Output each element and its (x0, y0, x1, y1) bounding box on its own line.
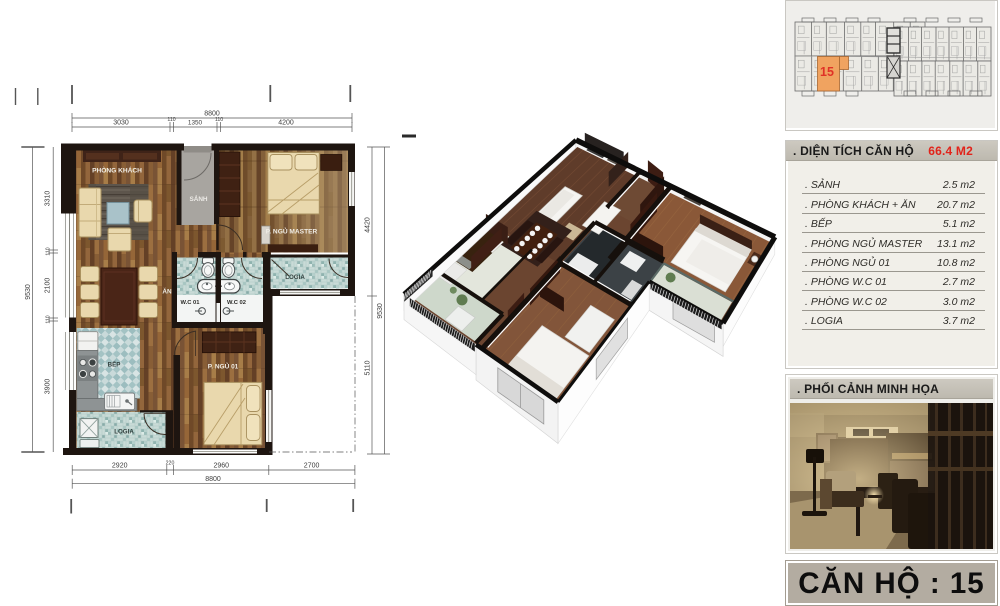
svg-text:2960: 2960 (214, 463, 230, 470)
svg-text:SẢNH: SẢNH (189, 194, 207, 203)
svg-text:9530: 9530 (25, 284, 32, 300)
svg-text:15: 15 (820, 65, 834, 79)
svg-text:W.C 02: W.C 02 (227, 300, 246, 306)
svg-text:4200: 4200 (278, 120, 294, 127)
svg-text:2920: 2920 (112, 463, 128, 470)
svg-text:ĂN: ĂN (162, 287, 172, 296)
svg-text:P. NGỦ MASTER: P. NGỦ MASTER (266, 227, 318, 236)
svg-text:W.C 01: W.C 01 (180, 300, 200, 306)
svg-text:4420: 4420 (365, 217, 372, 233)
svg-text:BẾP: BẾP (108, 362, 121, 369)
svg-text:PHÒNG KHÁCH: PHÒNG KHÁCH (92, 166, 142, 175)
svg-text:LOGIA: LOGIA (114, 429, 134, 436)
svg-text:3900: 3900 (45, 379, 52, 395)
svg-text:110: 110 (215, 117, 223, 123)
svg-text:2700: 2700 (304, 463, 320, 470)
svg-text:9530: 9530 (377, 303, 384, 319)
svg-text:110: 110 (46, 315, 52, 323)
svg-text:2100: 2100 (45, 278, 52, 294)
svg-text:3310: 3310 (45, 191, 52, 207)
svg-text:110: 110 (46, 247, 52, 255)
svg-text:1350: 1350 (188, 120, 203, 127)
svg-text:220: 220 (166, 461, 175, 467)
svg-text:110: 110 (167, 117, 175, 123)
svg-text:8800: 8800 (205, 476, 221, 483)
svg-text:P. NGỦ 01: P. NGỦ 01 (208, 362, 239, 371)
svg-text:3030: 3030 (113, 120, 129, 127)
svg-text:5110: 5110 (365, 360, 372, 375)
